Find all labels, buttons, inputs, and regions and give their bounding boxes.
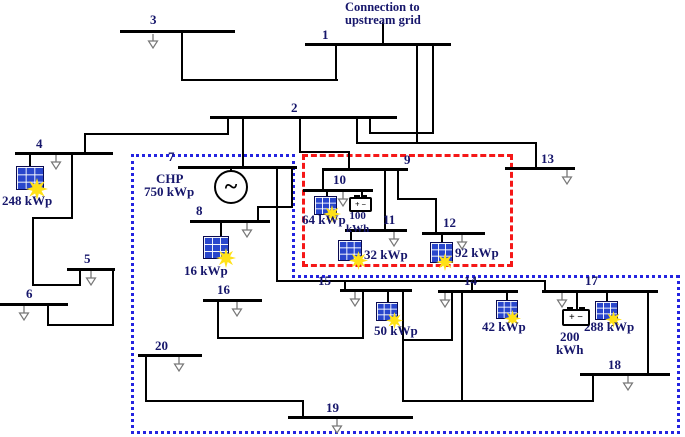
bus-bar-6 <box>0 303 68 306</box>
load-arrow-icon <box>337 192 349 207</box>
wire-segment <box>435 198 437 234</box>
wire-segment <box>84 133 86 154</box>
wire-segment <box>181 79 338 81</box>
bus-bar-3 <box>120 30 235 33</box>
wire-segment <box>71 155 73 219</box>
load-arrow-icon <box>622 376 634 391</box>
bus-bar-20 <box>138 354 202 357</box>
load-arrow-icon <box>349 292 361 307</box>
wire-segment <box>32 217 73 219</box>
wire-segment <box>461 293 463 402</box>
bus-label-15: 15 <box>318 274 331 287</box>
wire-segment <box>181 31 183 81</box>
battery-icon: + − <box>562 309 590 326</box>
wire-segment <box>112 271 114 326</box>
load-arrow-icon <box>18 306 30 321</box>
bus-label-9: 9 <box>404 153 411 166</box>
blue-dotted-zone-boundary <box>292 275 679 278</box>
pv-sun-icon <box>436 253 454 271</box>
single-line-diagram: 1234567891011121314151617181920248 kWp16… <box>0 0 685 437</box>
bus-label-7: 7 <box>168 150 175 163</box>
pv-capacity-label: 64 kWp <box>302 213 346 226</box>
load-arrow-icon <box>231 302 243 317</box>
bus-label-12: 12 <box>443 216 456 229</box>
wire-segment <box>402 400 594 402</box>
chp-capacity-label: 750 kWp <box>144 185 194 198</box>
load-arrow-icon <box>439 293 451 308</box>
bus-label-14: 14 <box>464 274 477 287</box>
bus-label-8: 8 <box>196 204 203 217</box>
bus-label-13: 13 <box>541 152 554 165</box>
bus-bar-2 <box>210 116 397 119</box>
wire-segment <box>402 292 404 402</box>
wire-segment <box>32 217 34 286</box>
wire-segment <box>145 357 147 402</box>
wire-segment <box>47 324 114 326</box>
battery-terminal-icon <box>354 195 360 199</box>
bus-bar-8 <box>190 220 270 223</box>
pv-capacity-label: 248 kWp <box>2 194 52 207</box>
bus-label-17: 17 <box>585 274 598 287</box>
wire-segment <box>47 306 49 326</box>
load-arrow-icon <box>556 293 568 308</box>
wire-segment <box>402 339 453 341</box>
wire-segment <box>291 169 293 208</box>
bus-label-6: 6 <box>26 287 33 300</box>
wire-segment <box>299 119 301 153</box>
battery-stem-wire <box>576 293 578 310</box>
wire-segment <box>356 119 358 144</box>
wire-segment <box>397 171 399 200</box>
bus-bar-12 <box>422 232 485 235</box>
bus-label-1: 1 <box>322 28 329 41</box>
bus-label-20: 20 <box>155 339 168 352</box>
wire-segment <box>217 302 219 339</box>
wire-segment <box>322 171 324 191</box>
load-arrow-icon <box>388 232 400 247</box>
bus-label-19: 19 <box>326 401 339 414</box>
pv-capacity-label: 92 kWp <box>455 246 499 259</box>
load-arrow-icon <box>85 271 97 286</box>
battery-terminal-icon <box>361 195 367 199</box>
wire-segment <box>369 119 371 134</box>
bus-label-18: 18 <box>608 358 621 371</box>
wire-segment <box>416 46 418 144</box>
chp-generator-icon: ~ <box>214 170 248 204</box>
wire-segment <box>242 119 244 168</box>
wire-segment <box>356 142 537 144</box>
battery-terminal-icon <box>567 307 573 311</box>
wire-segment <box>369 132 434 134</box>
load-arrow-icon <box>173 357 185 372</box>
bus-label-11: 11 <box>383 213 395 226</box>
bus-label-2: 2 <box>291 101 298 114</box>
wire-segment <box>145 400 304 402</box>
wire-segment <box>217 337 364 339</box>
bus-bar-19 <box>288 416 413 419</box>
wire-segment <box>535 142 537 169</box>
bus-label-16: 16 <box>217 283 230 296</box>
blue-dotted-zone-boundary <box>677 275 680 434</box>
pv-capacity-label: 50 kWp <box>374 324 418 337</box>
battery-capacity-label: 100kWh <box>346 210 369 236</box>
bus-label-5: 5 <box>84 252 91 265</box>
wire-segment <box>451 293 453 341</box>
bus-bar-9 <box>322 168 408 171</box>
wire-segment <box>79 271 81 286</box>
bus-label-4: 4 <box>36 137 43 150</box>
wire-segment <box>276 280 546 282</box>
battery-terminal-icon <box>579 307 585 311</box>
blue-dotted-zone-boundary <box>131 431 680 434</box>
load-arrow-icon <box>147 34 159 49</box>
bus-bar-7 <box>178 166 297 169</box>
pv-capacity-label: 32 kWp <box>364 248 408 261</box>
wire-segment <box>432 46 434 134</box>
pv-capacity-label: 42 kWp <box>482 320 526 333</box>
wire-segment <box>362 292 364 339</box>
load-arrow-icon <box>241 223 253 238</box>
blue-dotted-zone-boundary <box>131 154 295 157</box>
battery-capacity-label: 200kWh <box>556 330 583 356</box>
pv-capacity-label: 288 kWp <box>584 320 634 333</box>
wire-segment <box>647 293 649 375</box>
load-arrow-icon <box>50 155 62 170</box>
wire-segment <box>257 206 293 208</box>
load-arrow-icon <box>561 170 573 185</box>
wire-segment <box>276 169 278 282</box>
blue-dotted-zone-boundary <box>131 154 134 434</box>
wire-segment <box>84 133 229 135</box>
wire-segment <box>397 198 437 200</box>
wire-segment <box>335 45 337 81</box>
wire-segment <box>299 151 350 153</box>
wire-segment <box>32 284 81 286</box>
pv-capacity-label: 16 kWp <box>184 264 228 277</box>
bus-label-10: 10 <box>333 173 346 186</box>
bus-label-3: 3 <box>150 13 157 26</box>
load-arrow-icon <box>331 419 343 434</box>
bus-bar-1 <box>305 43 451 46</box>
wire-segment <box>592 376 594 402</box>
upstream-grid-connection-note: Connection toupstream grid <box>345 1 421 27</box>
